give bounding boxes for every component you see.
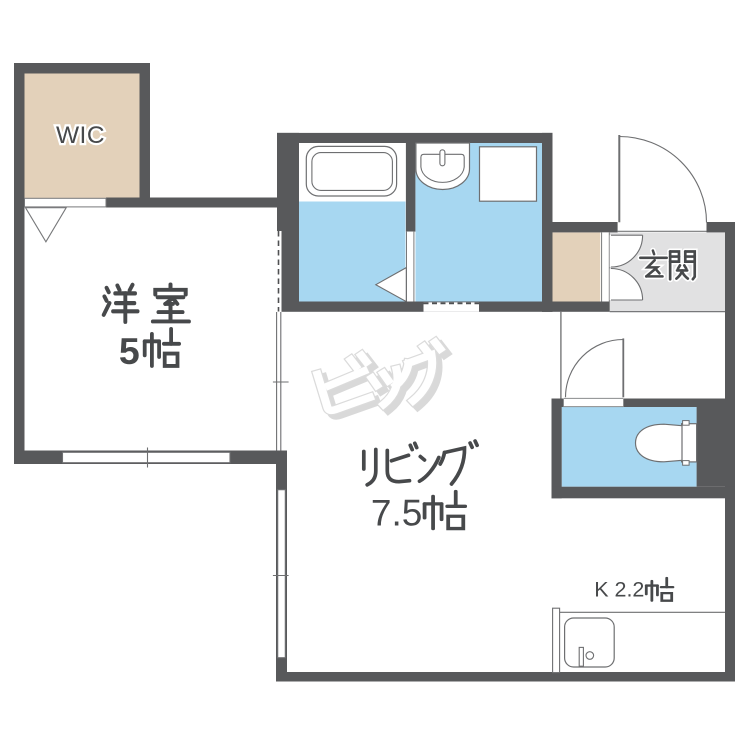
svg-text:WIC: WIC: [56, 122, 105, 149]
svg-text:7.5: 7.5: [371, 492, 422, 533]
svg-text:5: 5: [119, 330, 140, 372]
svg-text:K 2.2: K 2.2: [594, 578, 644, 602]
